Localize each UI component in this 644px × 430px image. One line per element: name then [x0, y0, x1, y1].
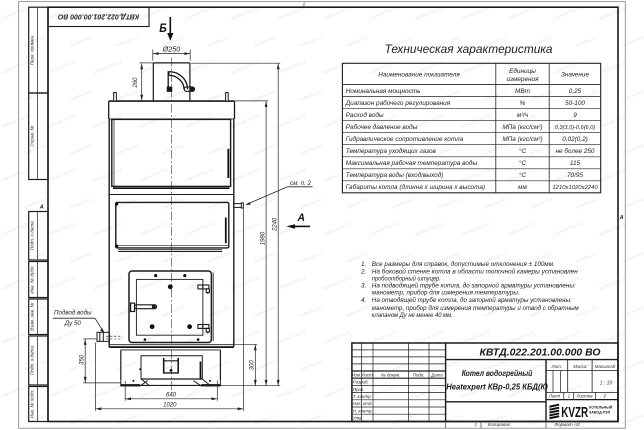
svg-text:манометр, прибор для измерения: манометр, прибор для измерения температу… — [372, 289, 520, 297]
svg-text:Нач. отд.: Нач. отд. — [353, 401, 373, 406]
svg-text:Все размеры для справок, допус: Все размеры для справок, допустимые откл… — [372, 260, 555, 268]
svg-text:Копировал: Копировал — [488, 422, 511, 427]
svg-text:А: А — [619, 215, 624, 221]
svg-text:70/95: 70/95 — [567, 172, 583, 179]
svg-text:350: 350 — [80, 354, 86, 365]
svg-text:На отводящей трубе котла, до з: На отводящей трубе котла, до запорной ар… — [372, 296, 572, 304]
svg-text:КВТД.022.201.00.000 ВО: КВТД.022.201.00.000 ВО — [57, 13, 139, 20]
svg-text:1 : 10: 1 : 10 — [600, 380, 613, 386]
svg-text:Инв. № дубл.: Инв. № дубл. — [29, 265, 34, 293]
svg-text:0,3(3,0)-0,6(6,0): 0,3(3,0)-0,6(6,0) — [555, 125, 596, 131]
svg-text:Значение: Значение — [561, 72, 589, 79]
svg-text:300: 300 — [250, 360, 256, 371]
svg-text:115: 115 — [570, 160, 581, 167]
svg-text:Т. контр.: Т. контр. — [353, 394, 372, 399]
svg-text:1210х1020х2240: 1210х1020х2240 — [552, 185, 598, 191]
svg-text:50-100: 50-100 — [565, 100, 585, 107]
svg-text:Габариты котла (длинна х ширин: Габариты котла (длинна х ширина х высота… — [346, 183, 485, 191]
svg-text:не более 250: не более 250 — [555, 147, 594, 155]
svg-text:640: 640 — [166, 392, 177, 398]
svg-text:мм: мм — [518, 184, 527, 191]
svg-text:МПа (кгс/см²): МПа (кгс/см²) — [502, 124, 542, 131]
svg-text:А: А — [296, 212, 305, 224]
svg-text:1980: 1980 — [260, 231, 266, 245]
svg-text:КВТД.022.201.00.000 ВО: КВТД.022.201.00.000 ВО — [480, 347, 601, 358]
svg-text:пробоотборный штуцер.: пробоотборный штуцер. — [372, 274, 441, 282]
svg-text:Диапазон рабочего регулировани: Диапазон рабочего регулирования — [345, 99, 451, 107]
svg-text:0,02(0,2): 0,02(0,2) — [562, 136, 588, 143]
svg-text:МВт: МВт — [515, 88, 531, 95]
svg-text:Формат А3: Формат А3 — [554, 422, 580, 427]
svg-text:Температура уходящих газов: Температура уходящих газов — [346, 147, 437, 155]
svg-text:Котел водогрейный: Котел водогрейный — [462, 368, 533, 378]
svg-text:9: 9 — [573, 112, 577, 119]
svg-text:Лист: Лист — [361, 372, 374, 377]
svg-text:KVZR: KVZR — [561, 404, 588, 421]
svg-text:А: А — [39, 205, 44, 211]
svg-text:Инв. № подл.: Инв. № подл. — [29, 390, 34, 419]
svg-text:Пров.: Пров. — [353, 387, 365, 392]
svg-text:2: 2 — [302, 2, 306, 7]
svg-text:2240: 2240 — [273, 217, 279, 232]
svg-text:Лит.: Лит. — [551, 364, 562, 369]
svg-text:Изм.: Изм. — [352, 372, 361, 377]
svg-text:МПа (кгс/см²): МПа (кгс/см²) — [502, 136, 542, 143]
svg-text:2: 2 — [602, 394, 606, 399]
svg-text:Техническая характеристика: Техническая характеристика — [385, 42, 553, 56]
svg-text:Разраб.: Разраб. — [353, 380, 369, 385]
svg-text:260: 260 — [133, 77, 139, 89]
svg-text:Номинальная мощность: Номинальная мощность — [346, 88, 421, 95]
svg-text:Гидравлическое сопротивление к: Гидравлическое сопротивление котла — [346, 135, 464, 143]
svg-text:Лист: Лист — [548, 394, 561, 399]
svg-text:Подп.: Подп. — [413, 372, 425, 377]
svg-text:2.: 2. — [360, 268, 366, 275]
svg-text:1020: 1020 — [163, 402, 177, 408]
svg-text:Heatexpert КВр-0,25 КБД(К): Heatexpert КВр-0,25 КБД(К) — [446, 382, 548, 392]
svg-text:Н. контр.: Н. контр. — [353, 408, 373, 413]
svg-text:На боковой стенке котла в обла: На боковой стенке котла в области топочн… — [372, 267, 579, 275]
svg-text:°С: °С — [519, 147, 527, 155]
svg-text:Листов: Листов — [576, 394, 594, 399]
svg-text:Наименование показателя: Наименование показателя — [378, 72, 460, 79]
svg-text:см. п. 2: см. п. 2 — [290, 180, 312, 187]
svg-text:Утв.: Утв. — [353, 416, 363, 421]
svg-text:1: 1 — [475, 422, 478, 427]
svg-text:Единицы: Единицы — [509, 67, 536, 75]
svg-text:м³/ч: м³/ч — [517, 112, 529, 119]
svg-text:Ø250: Ø250 — [162, 45, 181, 54]
svg-text:измерения: измерения — [507, 76, 540, 83]
svg-text:Справ. №: Справ. № — [29, 126, 34, 147]
svg-text:0,25: 0,25 — [569, 88, 582, 95]
svg-text:%: % — [520, 100, 526, 107]
svg-text:манометр, прибор для измерения: манометр, прибор для измерения температу… — [372, 304, 580, 312]
svg-text:Максимальная рабочая температу: Максимальная рабочая температура воды — [346, 159, 478, 167]
svg-text:Перв. примен.: Перв. примен. — [29, 35, 34, 66]
svg-text:Расход воды: Расход воды — [346, 111, 384, 119]
svg-text:Дата: Дата — [430, 372, 443, 377]
svg-text:ЗАВОД РЭП: ЗАВОД РЭП — [589, 410, 611, 414]
svg-text:Взам. инв. №: Взам. инв. № — [29, 302, 34, 330]
svg-text:Ду 50: Ду 50 — [64, 320, 82, 327]
svg-text:Рабочее давление воды: Рабочее давление воды — [346, 123, 418, 131]
svg-text:КОТЕЛЬНЫЙ: КОТЕЛЬНЫЙ — [589, 405, 613, 409]
svg-text:4.: 4. — [361, 297, 366, 304]
svg-text:На подводящей трубе котла, до: На подводящей трубе котла, до запорной а… — [372, 282, 576, 290]
svg-text:Масштаб: Масштаб — [595, 364, 616, 369]
svg-text:Температура воды (вход/выход): Температура воды (вход/выход) — [346, 171, 444, 179]
svg-text:№ докум.: № докум. — [381, 372, 400, 377]
svg-text:°С: °С — [519, 159, 527, 167]
svg-text:Масса: Масса — [573, 364, 587, 369]
svg-text:1.: 1. — [361, 261, 366, 268]
svg-text:Подп. и дата: Подп. и дата — [29, 221, 34, 250]
svg-text:Подп. и дата: Подп. и дата — [29, 346, 34, 375]
svg-text:3.: 3. — [361, 283, 366, 290]
svg-text:клапаном Ду не менее 40 мм.: клапаном Ду не менее 40 мм. — [372, 312, 453, 319]
svg-text:Б: Б — [159, 23, 167, 35]
svg-text:°С: °С — [519, 171, 527, 179]
svg-text:Подвод воды: Подвод воды — [54, 310, 92, 317]
